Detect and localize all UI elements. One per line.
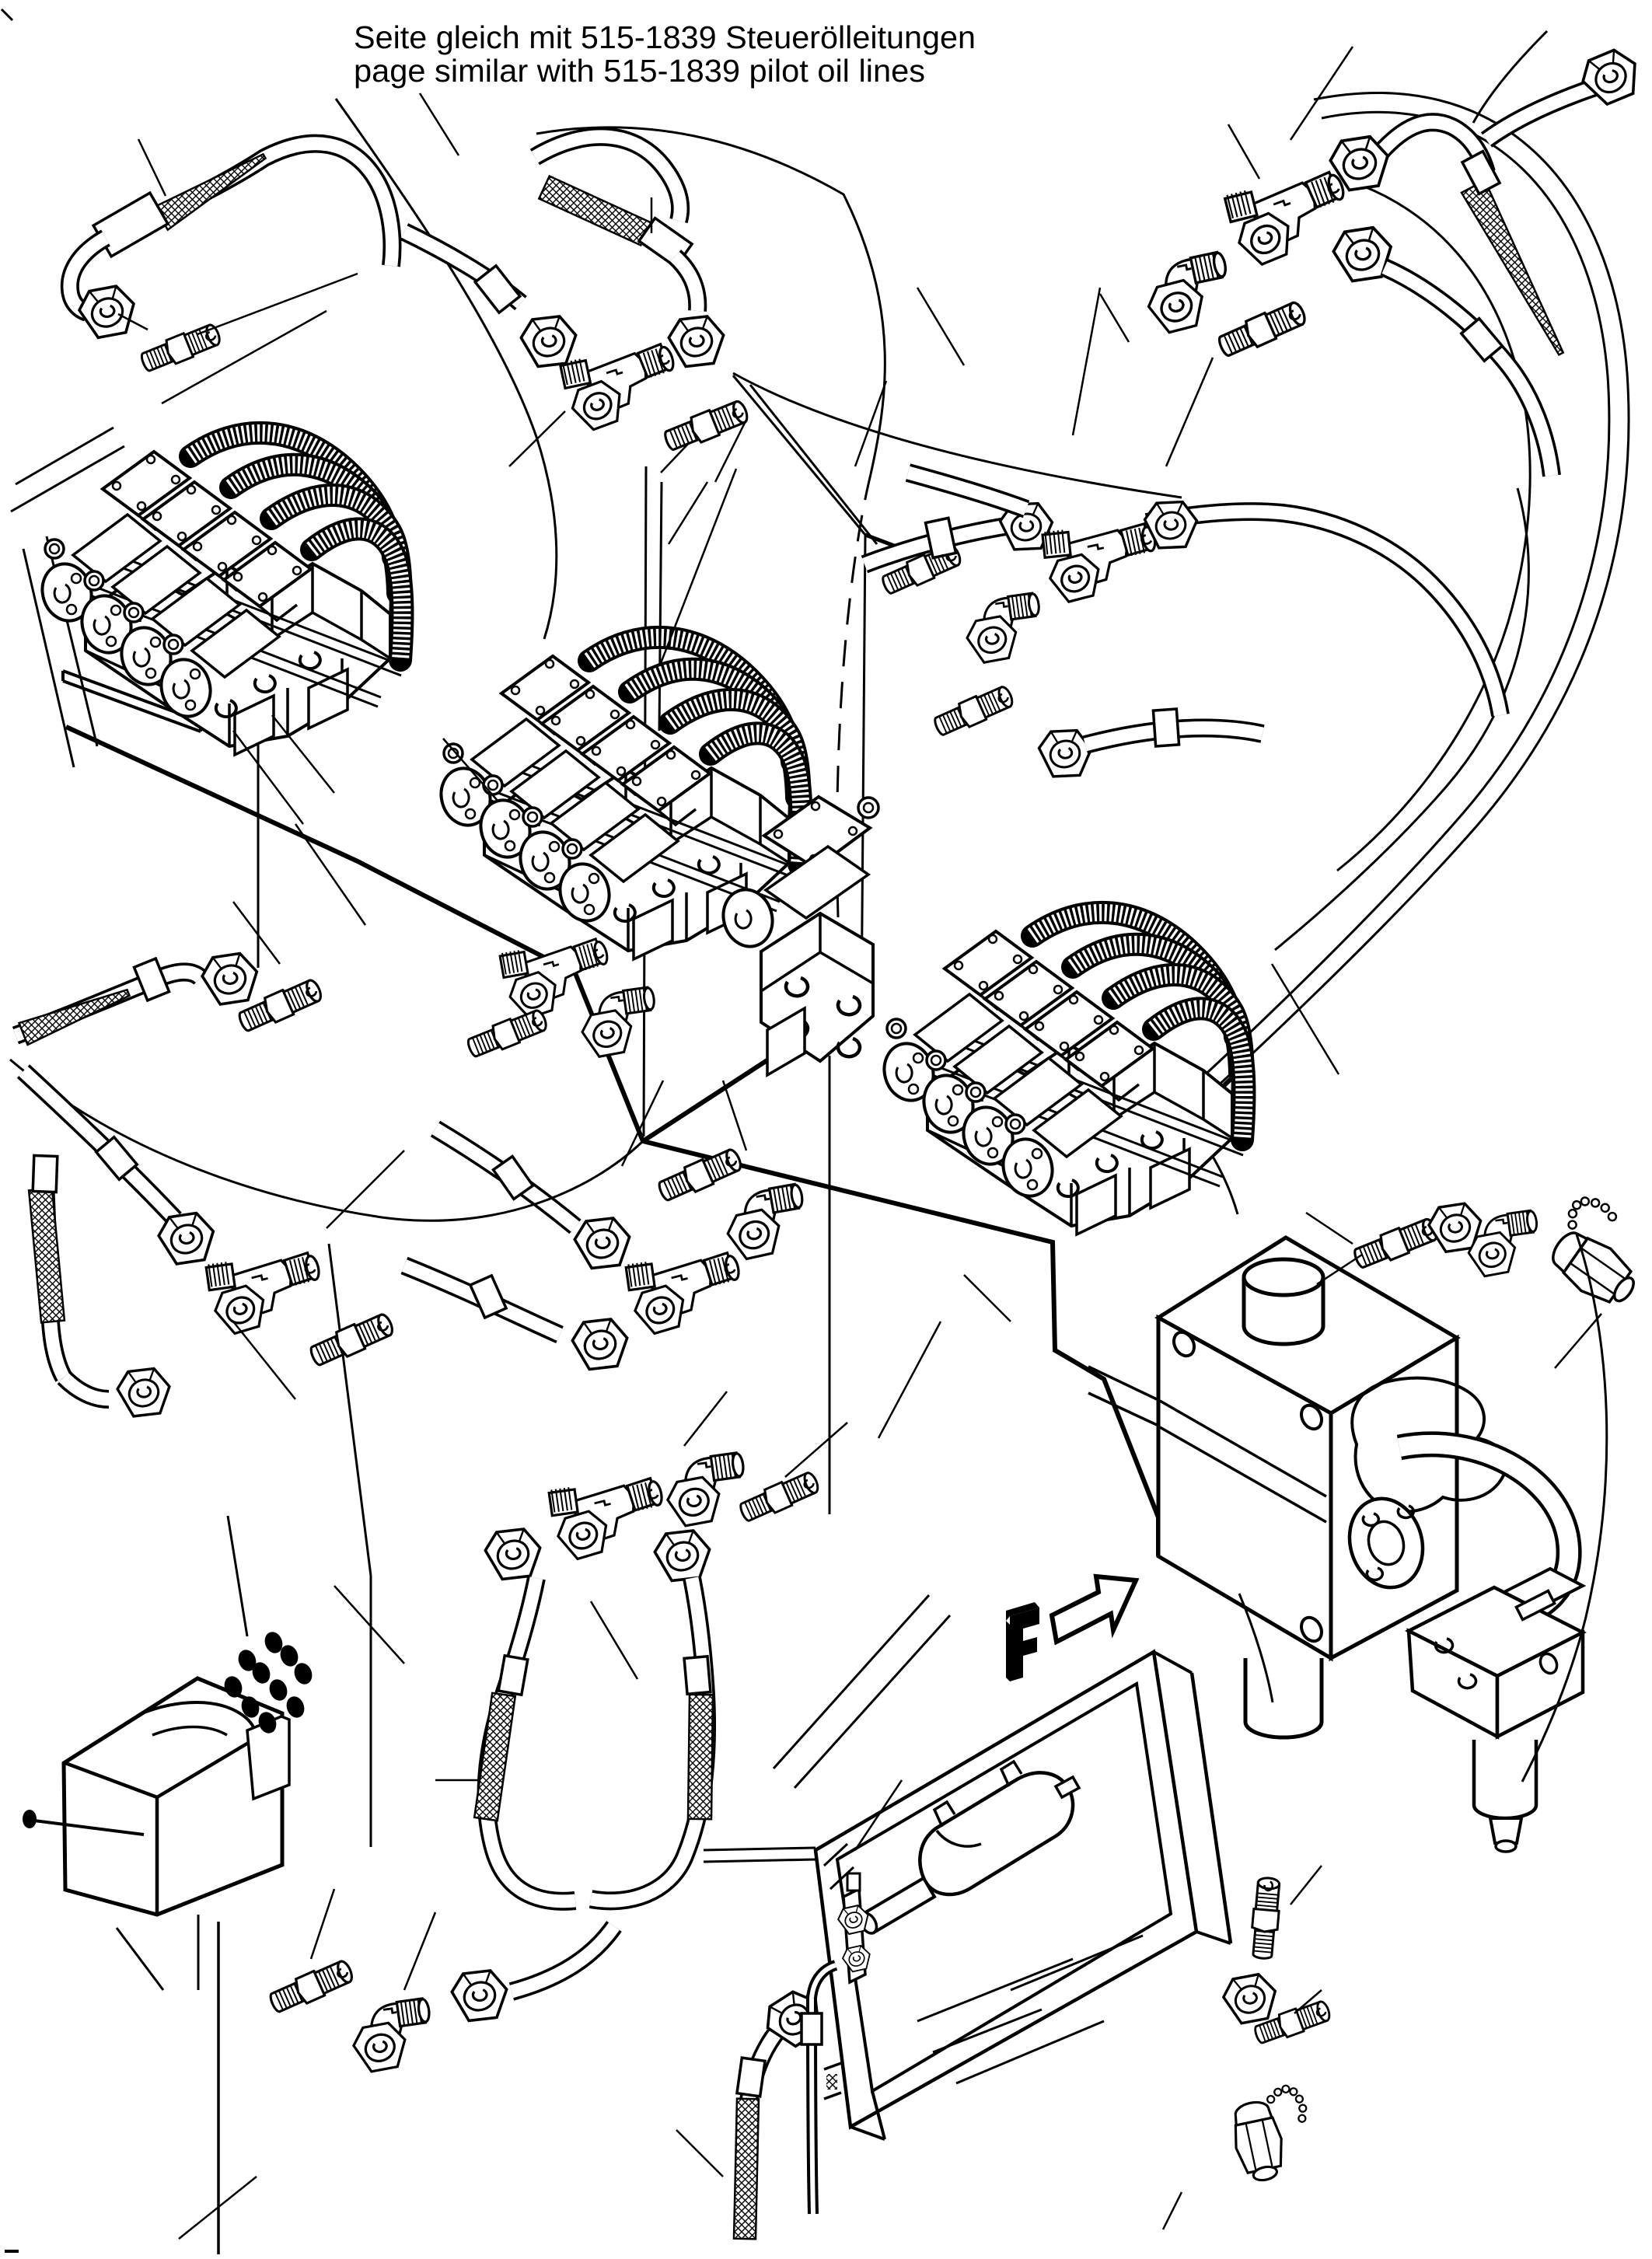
svg-text:page similar with 515-1839 pil: page similar with 515-1839 pilot oil lin… [354, 53, 925, 89]
svg-text:Seite gleich mit 515-1839 Steu: Seite gleich mit 515-1839 Steuerölleitun… [354, 19, 976, 55]
